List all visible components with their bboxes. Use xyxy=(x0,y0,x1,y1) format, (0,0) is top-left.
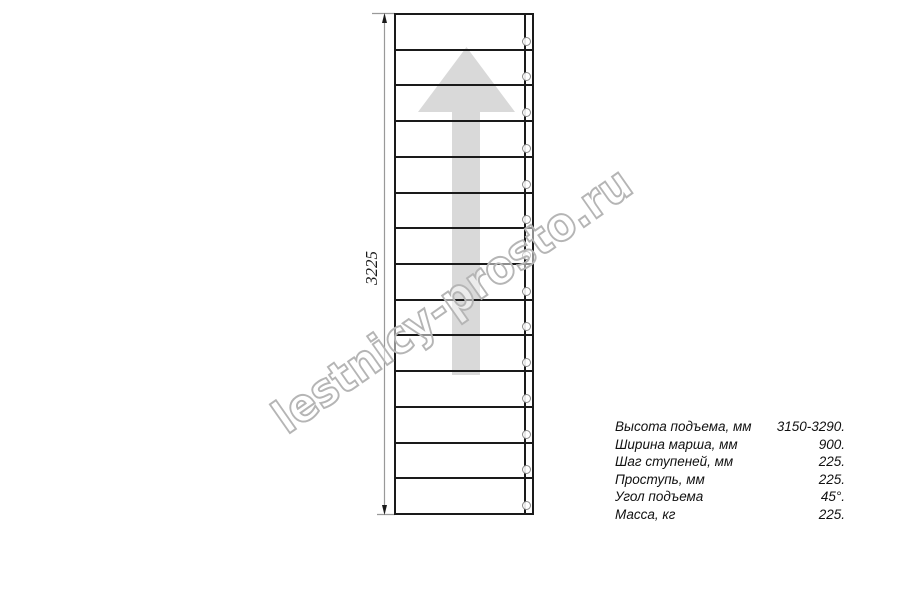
dimension-value-label: 3225 xyxy=(362,238,382,298)
stair-step-cell xyxy=(396,479,532,513)
stair-step-cell xyxy=(396,229,532,265)
stair-step-cell xyxy=(396,194,532,230)
spec-value: 900. xyxy=(819,436,845,454)
screw-hole-icon xyxy=(522,108,531,117)
spec-value: 225. xyxy=(819,506,845,524)
spec-value: 225. xyxy=(819,453,845,471)
spec-row: Ширина марша, мм900. xyxy=(615,436,845,454)
dimension-arrowhead-top-icon xyxy=(382,13,387,23)
screw-hole-icon xyxy=(522,144,531,153)
screw-hole-icon xyxy=(522,501,531,510)
stair-step-cell xyxy=(396,372,532,408)
spec-label: Проступь, мм xyxy=(615,471,705,489)
stair-step-cell xyxy=(396,336,532,372)
spec-value: 45°. xyxy=(821,488,845,506)
specs-table: Высота подъема, мм3150-3290.Ширина марша… xyxy=(615,418,845,524)
staircase-technical-drawing: 3225 lestnicy-prosto.ru Высота подъема, … xyxy=(0,0,900,600)
screw-hole-icon xyxy=(522,37,531,46)
screw-hole-icon xyxy=(522,180,531,189)
stair-step-cell xyxy=(396,301,532,337)
spec-row: Проступь, мм225. xyxy=(615,471,845,489)
stair-step-cell xyxy=(396,122,532,158)
spec-value: 225. xyxy=(819,471,845,489)
stair-steps xyxy=(396,15,532,513)
screw-hole-icon xyxy=(522,72,531,81)
spec-label: Ширина марша, мм xyxy=(615,436,738,454)
spec-label: Высота подъема, мм xyxy=(615,418,751,436)
screw-hole-icon xyxy=(522,394,531,403)
spec-row: Высота подъема, мм3150-3290. xyxy=(615,418,845,436)
stair-step-cell xyxy=(396,408,532,444)
stair-step-cell xyxy=(396,444,532,480)
screw-hole-icon xyxy=(522,215,531,224)
spec-row: Шаг ступеней, мм225. xyxy=(615,453,845,471)
spec-label: Шаг ступеней, мм xyxy=(615,453,733,471)
dimension-arrowhead-bottom-icon xyxy=(382,505,387,515)
stair-step-cell xyxy=(396,15,532,51)
screw-hole-icon xyxy=(522,430,531,439)
screw-hole-icon xyxy=(522,287,531,296)
screw-hole-icon xyxy=(522,322,531,331)
spec-label: Масса, кг xyxy=(615,506,675,524)
spec-value: 3150-3290. xyxy=(777,418,845,436)
screw-hole-icon xyxy=(522,358,531,367)
spec-label: Угол подъема xyxy=(615,488,703,506)
spec-row: Масса, кг225. xyxy=(615,506,845,524)
stair-step-cell xyxy=(396,86,532,122)
staircase-plan xyxy=(394,13,534,515)
stair-step-cell xyxy=(396,51,532,87)
screw-hole-icon xyxy=(522,251,531,260)
screw-hole-icon xyxy=(522,465,531,474)
stair-step-cell xyxy=(396,158,532,194)
spec-row: Угол подъема45°. xyxy=(615,488,845,506)
stair-step-cell xyxy=(396,265,532,301)
